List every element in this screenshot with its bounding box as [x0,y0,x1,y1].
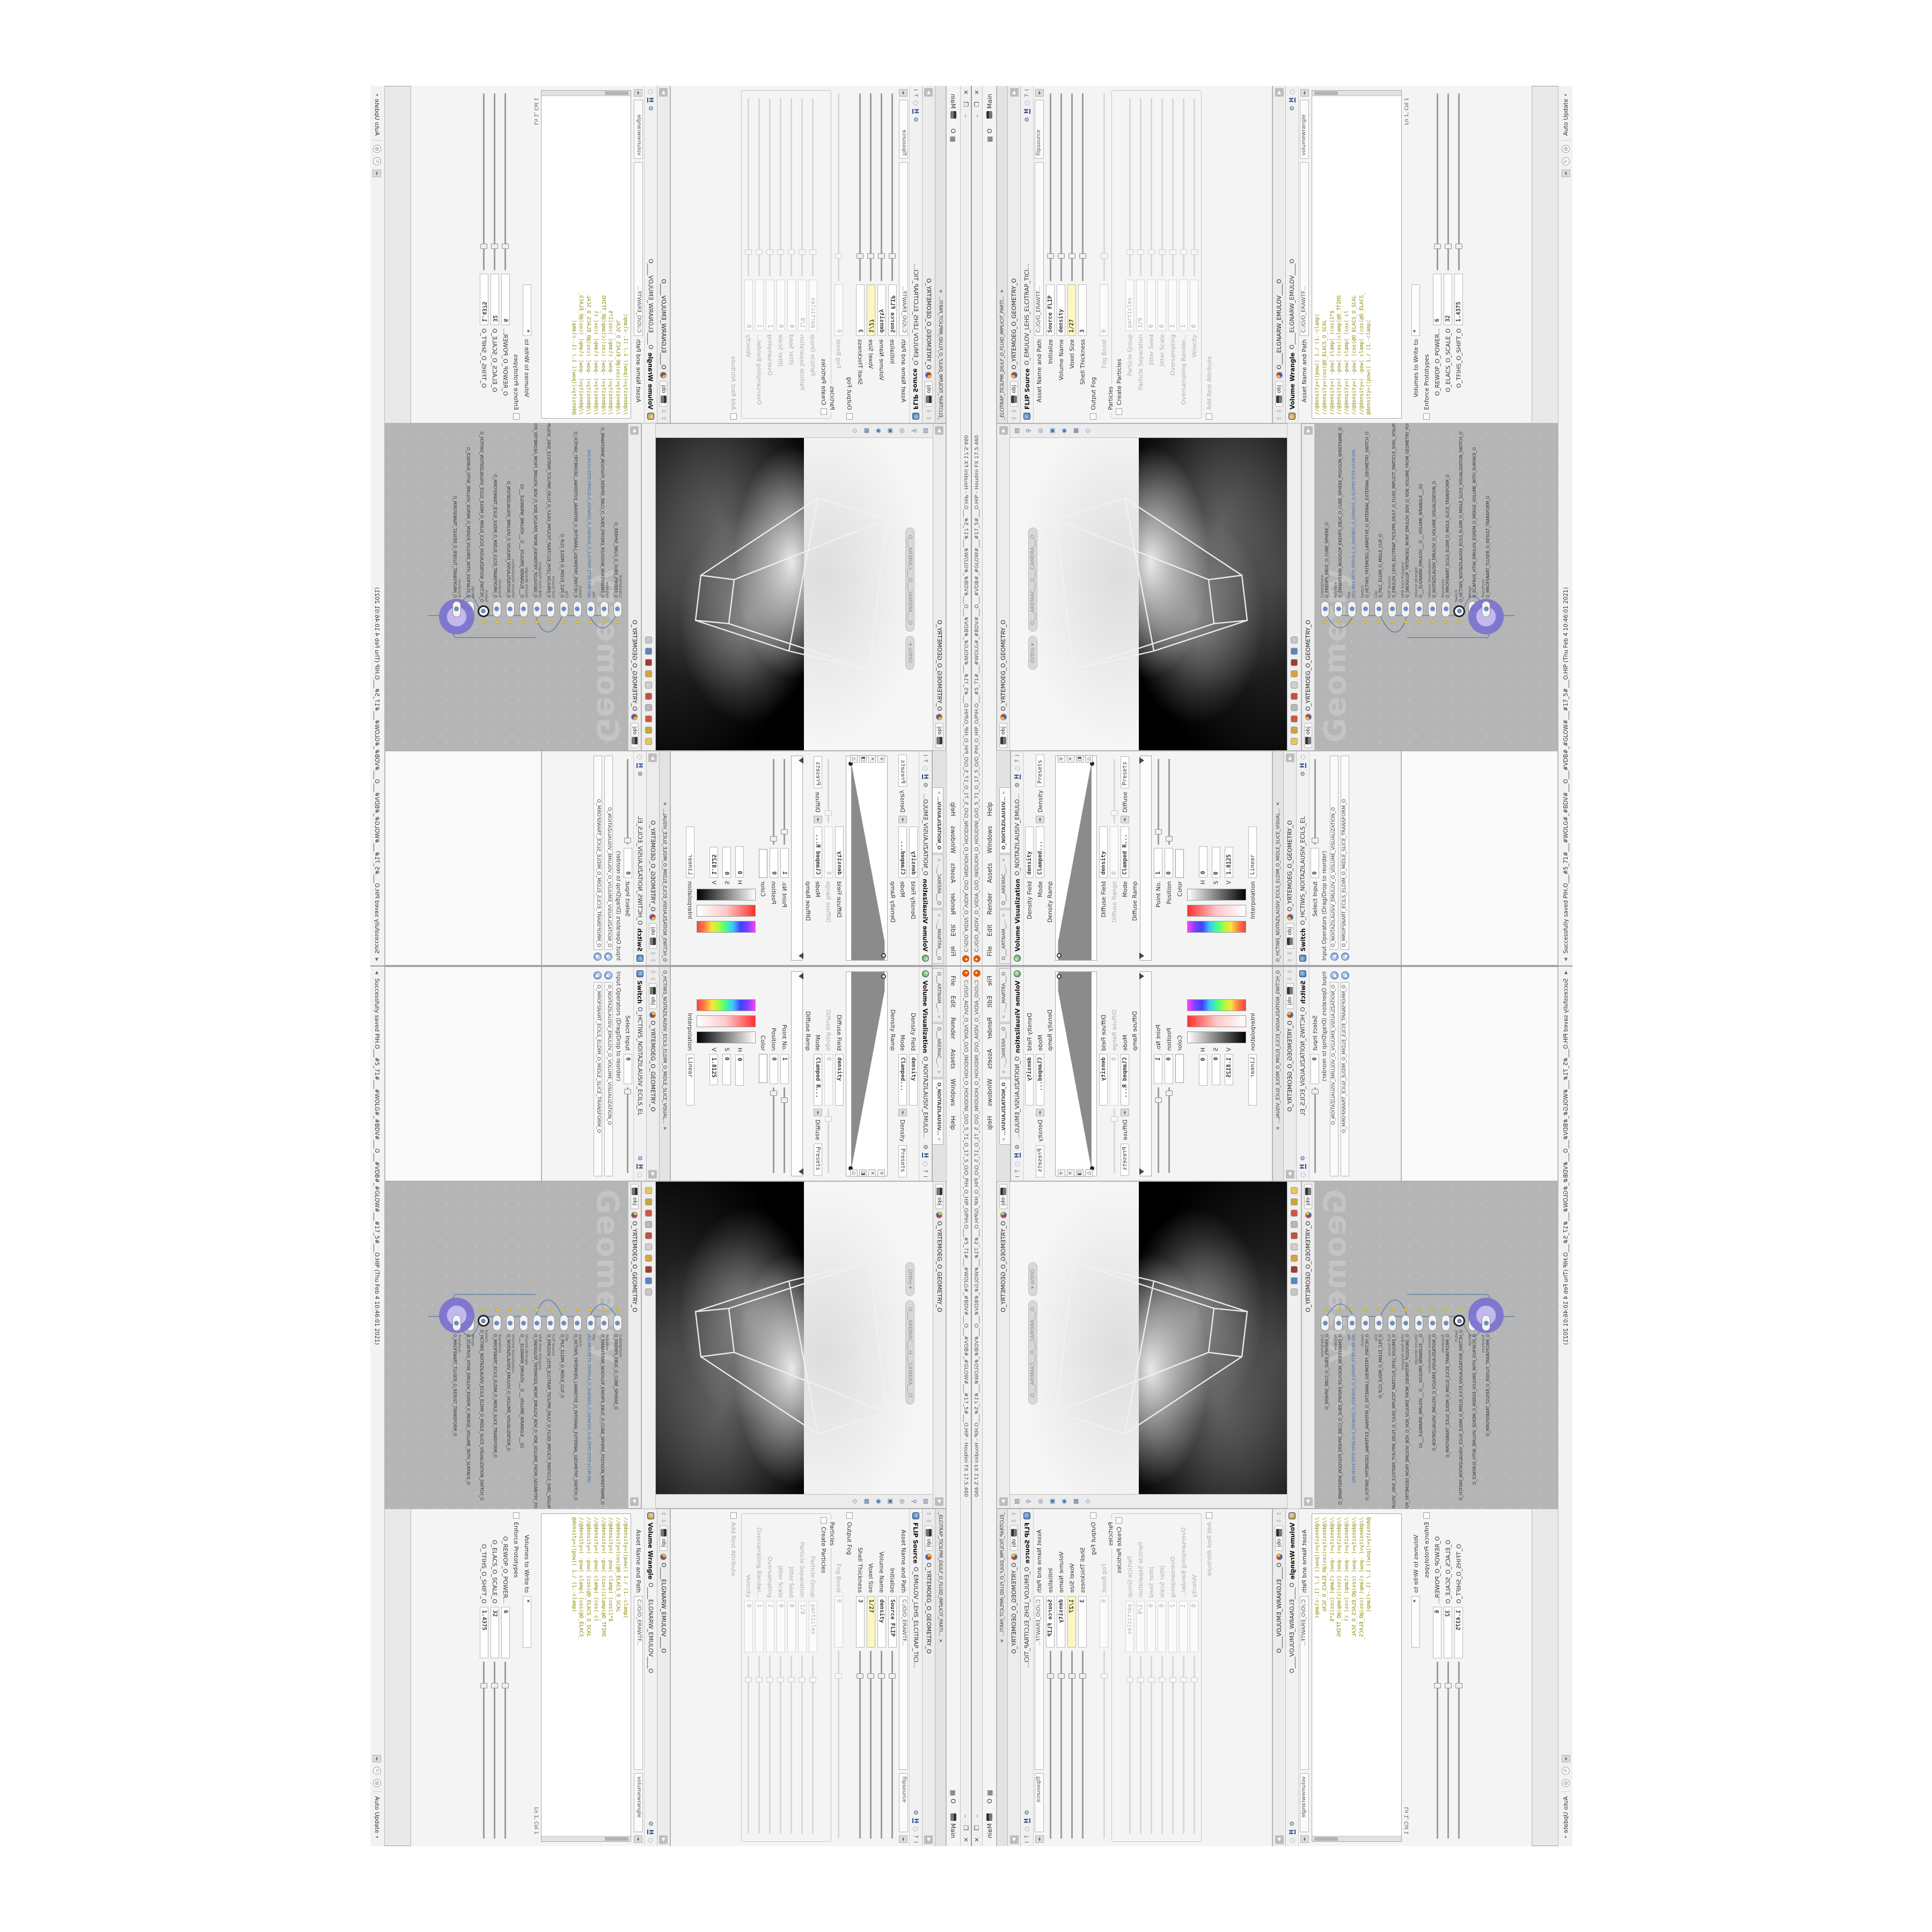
search-icon[interactable]: ◌ [1023,1826,1030,1832]
view-mode-pill[interactable]: Ortho ▾ [1028,1262,1037,1296]
menu-item[interactable]: Help [948,1111,959,1135]
network-node[interactable]: SwitchO_HCTIWS_YRTEMOEG_LANRETXE_O_INTER… [573,423,582,624]
ramp-add-button[interactable]: ✛ [1058,755,1065,763]
tab-close-icon[interactable]: ✕ [936,858,941,862]
node-badge[interactable] [452,601,461,617]
node-name[interactable]: O_HCTIWS_NOITAZILAUSIV_ECILS_EL [636,1007,643,1152]
node-badge[interactable] [1441,601,1450,617]
network-node[interactable]: Volume VisualizationO_NOITAZILAUSIV_EMUL… [1428,1308,1437,1509]
snap-icon[interactable]: ◇ [852,428,859,433]
snap-grid-icon[interactable] [645,715,652,722]
node-flag-icon[interactable] [1377,620,1380,624]
nav-down-icon[interactable]: ⇩ [925,1518,932,1523]
value-strip[interactable] [1187,889,1246,901]
node-name[interactable]: O_EMULOV_LEHS_ELCITRAP_TICI... [1023,126,1030,365]
checkbox[interactable] [1423,413,1430,420]
network-node[interactable]: Volume VisualizationO_NOITAZILAUSIV_EMUL… [506,423,515,624]
parameter-value[interactable]: 0 [1158,280,1166,331]
node-flag-icon[interactable] [1444,1308,1447,1312]
expand-button[interactable]: ▶ [1286,753,1294,762]
parameter-value[interactable]: 1/27 [1067,284,1076,336]
node-badge[interactable] [1482,1315,1490,1331]
point-no-value[interactable]: 1 [780,848,789,878]
ramp-flag-handle[interactable] [799,973,803,979]
h-value[interactable]: 0 [735,1055,744,1086]
shade-mode-icon[interactable] [645,1255,652,1262]
search-icon[interactable]: ◌ [1023,100,1030,106]
parameter-value[interactable]: 0 [1190,280,1198,331]
nav-up-icon[interactable]: ⇧ [925,416,932,421]
cube-view-icon[interactable]: ▣ [887,1498,894,1504]
layout-icon[interactable]: ▤ [923,1498,930,1504]
pane-path[interactable]: O_YRTEMOEG_O_GEOMETRY_O [1000,437,1007,711]
expand-button[interactable]: ▶ [1010,88,1019,97]
parameter-slider[interactable] [1194,1656,1195,1834]
node-flag-icon[interactable] [616,1308,619,1312]
menu-item[interactable]: File [984,941,995,961]
expand-button[interactable]: ▶ [649,1170,657,1179]
code-scrollbar[interactable] [541,1836,631,1841]
node-badge[interactable] [478,1315,489,1327]
viewport-canvas[interactable]: Ortho ▾ O___AREMAC___O___CAMERA___O [655,437,933,750]
expand-button[interactable]: ▶ [935,426,944,435]
network-node[interactable]: Volume VisualizationO_NOITAZILAUSIV_EMUL… [506,1308,515,1509]
parameter-slider[interactable] [1458,93,1460,270]
pane-tab[interactable]: O___AREMAC__...✕ [933,1023,943,1078]
mode2-dropdown[interactable]: Clamped R... [814,1054,822,1106]
node-flag-icon[interactable] [509,1308,512,1312]
network-node[interactable]: FileJRD.M01.PETS.TRIPOLS_O_SISENEG_O_GEN… [586,423,596,624]
network-node[interactable]: Volume WrangleO___ELGNARW_EMULOV___O___V… [519,1308,529,1509]
node-badge[interactable] [1401,601,1410,617]
parameter-slider[interactable] [1129,1656,1131,1834]
tab-close-icon[interactable]: ✕ [936,1015,941,1019]
viewport-canvas[interactable]: Ortho ▾ O___AREMAC___O___CAMERA___O [655,1182,933,1495]
point-no-slider[interactable] [1158,1087,1159,1173]
flip-pane-tab[interactable]: _ELCITRAP_TICILPMI_DIULF_O_FLUID_IMPLICI… [938,296,943,420]
parameter-slider[interactable] [770,1656,771,1834]
network-node[interactable]: ClipO_PILC_ELDIM_O_MIDLE_CLIP_O [559,1308,569,1509]
s-value[interactable]: 0 [722,1054,731,1085]
pane-path[interactable]: O____ELGNARW_EMULOV____O [1276,1563,1283,1833]
snap-prim-icon[interactable] [1291,704,1298,711]
checkbox[interactable] [513,413,519,420]
checkbox[interactable] [846,413,853,420]
houdini-help-icon[interactable]: H [923,774,929,779]
diffuse-ramp-widget[interactable] [1140,756,1152,961]
point-no-slider[interactable] [784,759,786,845]
node-name[interactable]: O____ELGNARW_EMULOV____O [1289,1583,1296,1818]
select-input-value[interactable]: 0 [624,1054,632,1084]
diffuse-field-value[interactable]: density [1099,1054,1108,1106]
ramp-point-handle[interactable] [1057,974,1062,979]
expand-button[interactable]: ▶ [935,1497,944,1506]
network-node[interactable]: SwitchO_HCTIWS_YRTEMOEG_LANRETXE_O_INTER… [1360,423,1370,624]
search-icon[interactable]: ◌ [912,100,919,106]
nav-up-icon[interactable]: ⇧ [925,1511,932,1516]
snap-icon[interactable]: ◇ [1084,428,1091,433]
pane-path[interactable]: O_YRTEMOEG_O_GEOMETRY_O [649,1021,656,1167]
gear-icon[interactable]: ⚙ [1289,1821,1296,1826]
camera-name-pill[interactable]: O___AREMAC___O___CAMERA___O [905,1300,914,1404]
presets-button[interactable]: Presets [814,1144,822,1176]
gear-icon[interactable]: ⚙ [1023,117,1030,122]
checkbox[interactable] [1423,1512,1430,1519]
search-icon[interactable]: ◌ [922,766,929,771]
node-badge[interactable] [1388,1315,1396,1331]
node-flag-icon[interactable] [562,620,566,624]
node-flag-icon[interactable] [549,620,552,624]
parameter-slider[interactable] [1172,1656,1174,1834]
parameter-value[interactable]: Source FLIP [888,1596,897,1648]
density-field-value[interactable]: density [909,826,918,878]
checkbox[interactable] [730,413,737,420]
switch-pane-tab[interactable]: O_HCTIWS_NOITAZILAUSIV_ECILS_ELDIM_O_MID… [1276,808,1281,962]
pane-path[interactable]: O_YRTEMOEG_O_GEOMETRY_O [925,99,932,369]
node-name[interactable]: O_NOITAZILAUSIV_EMULO... [922,791,929,876]
tab-close-icon[interactable]: ✕ [1001,1015,1006,1019]
node-badge[interactable] [600,601,609,617]
parameter-slider[interactable] [1060,93,1062,281]
desktop-main[interactable]: Main [985,1809,994,1842]
network-node[interactable]: ClipO_PILC_ELDIM_O_MIDLE_CLIP_O [1374,1308,1384,1509]
houdini-help-icon[interactable]: H [1300,763,1306,768]
code-scrollbar[interactable] [1312,1836,1401,1841]
menu-item[interactable]: Assets [984,1044,995,1073]
asset-path-combo[interactable]: C:/O/O_ERAWTF... [1035,162,1044,336]
tab-close-icon[interactable]: ✕ [936,1070,941,1074]
saturation-strip[interactable] [697,1015,756,1027]
asset-name-combo[interactable]: flipsource [1035,100,1044,159]
camera-view-icon[interactable]: ◉ [1060,428,1067,434]
nav-up-icon[interactable]: ⇧ [660,416,667,421]
checkbox[interactable] [513,1512,519,1519]
tab-close-icon[interactable]: ✕ [938,289,943,293]
node-flag-icon[interactable] [616,620,619,624]
network-node[interactable]: SwitchO_HCTIWS_NOITAZILAUSIV_ECILS_ELDIM… [1454,423,1464,624]
presets-button[interactable]: Presets [1121,756,1129,788]
show-normals-icon[interactable] [645,1198,652,1205]
nav-up-icon[interactable]: ⇧ [1286,958,1293,963]
menu-item[interactable]: Render [984,1013,995,1044]
network-node[interactable]: Volume WrangleO___ELGNARW_EMULOV___O___V… [519,423,529,624]
h-value[interactable]: 0 [1199,1055,1207,1086]
node-name[interactable]: O_EMULOV_LEHS_ELCITRAP_TICI... [1023,1567,1030,1807]
parameter-value[interactable]: Source FLIP [888,284,897,336]
diffuse-range-value[interactable]: 0 [1110,1054,1118,1106]
globe-icon[interactable]: ◍ [373,145,381,153]
point-no-slider[interactable] [1158,759,1159,845]
network-node[interactable]: VDB from PolygonsO_SNOGILOP_YRTEMOEG_MOR… [532,1308,542,1509]
camera-view-icon[interactable]: ◉ [1060,1499,1067,1504]
hue-strip[interactable] [697,921,756,933]
node-badge[interactable] [1441,1315,1450,1331]
diffuse-ramp-widget[interactable] [791,971,803,1176]
pane-tab[interactable]: O___ARTNAM__...✕ [999,968,1010,1022]
nav-up-icon[interactable]: ⇧ [649,969,656,974]
nav-up-icon[interactable]: ⇧ [1011,1511,1018,1516]
node-flag-icon[interactable] [1444,620,1447,624]
camera-name-pill[interactable]: O___AREMAC___O___CAMERA___O [1028,1300,1037,1404]
pane-path[interactable]: O_YRTEMOEG_O_GEOMETRY_O [1011,99,1018,369]
snap-grid-icon[interactable] [1291,715,1298,722]
ramp-flag-handle[interactable] [1139,1168,1144,1175]
h-value[interactable]: 0 [735,846,744,877]
parameter-slider[interactable] [759,1656,760,1834]
menu-item[interactable]: Help [984,1111,995,1135]
mode2-dropdown[interactable]: Clamped R... [1121,1054,1129,1106]
density-subtab[interactable]: Density [899,1119,906,1142]
network-node[interactable]: VDB from PolygonsO_SNOGILOP_YRTEMOEG_MOR… [532,423,542,624]
snap-icon[interactable]: ◇ [852,1499,859,1503]
asset-path-combo[interactable]: C:/O/O_ERAWTF... [634,1596,643,1770]
node-flag-icon[interactable] [1391,1308,1394,1312]
cube-view-icon[interactable]: ▣ [1049,1498,1056,1504]
code-scrollbar[interactable] [1312,91,1401,96]
pane-path[interactable]: O_YRTEMOEG_O_GEOMETRY_O [1305,437,1312,711]
position-slider[interactable] [773,759,775,845]
spinner-icon[interactable]: ◂▸ [634,89,643,97]
diffuse-field-value[interactable]: density [835,1054,844,1106]
network-node[interactable]: ClipO_PILC_ELDIM_O_MIDLE_CLIP_O [559,423,569,624]
view-mode-pill[interactable]: Ortho ▾ [905,636,914,670]
search-icon[interactable]: ◌ [636,755,643,760]
gear-icon[interactable]: ⚙ [1023,1810,1030,1815]
node-flag-icon[interactable] [495,620,499,624]
reorder-handle-icon[interactable]: ◀ [605,953,613,961]
flip-pane-tab[interactable]: _ELCITRAP_TICILPMI_DIULF_O_FLUID_IMPLICI… [1000,1512,1005,1636]
parameter-value[interactable]: 1.4375 [480,1607,488,1658]
parameter-value[interactable]: Source FLIP [1046,1596,1055,1648]
snap-point-icon[interactable] [645,1232,652,1239]
info-icon[interactable]: i [922,755,929,756]
asset-name-combo[interactable]: volumewrangle [634,100,643,159]
parameter-slider[interactable] [1151,1656,1152,1834]
menu-item[interactable]: File [948,941,959,961]
menu-item[interactable]: Assets [948,858,959,888]
gear-icon[interactable]: ⚙ [636,1155,643,1161]
display-options-icon[interactable] [1291,648,1298,655]
status-collapse-icon[interactable]: ◀ [1563,971,1568,974]
houdini-help-icon[interactable]: H [637,1164,643,1169]
asset-name-combo[interactable]: flipsource [899,1773,908,1832]
presets-button[interactable]: Presets [1036,755,1044,787]
parameter-slider[interactable] [505,1662,507,1839]
node-name[interactable]: O_EMULOV_LEHS_ELCITRAP_TICI... [912,126,919,365]
vex-snippet-editor[interactable]: //@density=((pow(( 1./ (1.-clamp(//@dens… [1312,1513,1402,1842]
parameter-value[interactable]: 2 [1168,280,1177,331]
gear-icon[interactable]: ⚙ [1299,1155,1306,1161]
parameter-value[interactable]: 32 [491,274,499,325]
menu-item[interactable]: Windows [948,1074,959,1111]
network-node[interactable]: PolyWireO_EMARFERIW_NOGYLOP_EREHPS_EBUC_… [1334,423,1343,624]
show-normals-icon[interactable] [1291,1198,1298,1205]
camera-view-icon[interactable]: ◉ [875,428,882,434]
asset-path-combo[interactable]: C:/O/O_ERAWTF... [1300,162,1309,336]
menu-item[interactable]: File [948,971,959,991]
parameter-value[interactable]: 0 [777,280,785,331]
parameter-value[interactable]: 0 [787,280,796,331]
presets-button[interactable]: Presets [898,1145,907,1177]
pane-path[interactable]: O_YRTEMOEG_O_GEOMETRY_O [649,765,656,911]
network-node[interactable]: CubeSphereO_EREHPS_EBUC_O_CUBE_SPHERE_O [613,423,623,624]
nav-down-icon[interactable]: ⇩ [925,409,932,414]
help-icon[interactable]: ? [1023,94,1030,97]
search-icon[interactable]: ◌ [1014,766,1021,771]
diffuse-field-value[interactable]: density [835,826,844,878]
asset-name-combo[interactable]: volumewrangle [634,1773,643,1832]
node-badge[interactable] [560,601,568,617]
wireframe-icon[interactable] [1291,659,1298,666]
network-node[interactable]: ClipO_PILC_ELDIM_O_MIDLE_CLIP_O [1374,423,1384,624]
diffuse-range-slider[interactable] [828,759,830,823]
snap-prim-icon[interactable] [1291,1221,1298,1228]
density-ramp-widget[interactable]: ✛ ✕ ◨ △ [1055,756,1097,961]
parameter-slider[interactable] [1082,93,1084,281]
menu-item[interactable]: Help [948,797,959,821]
position-value[interactable]: 0 [770,848,778,878]
wireframe-icon[interactable] [645,1266,652,1273]
menu-item[interactable]: Windows [984,821,995,858]
parameter-value[interactable]: 32 [491,1607,499,1658]
tab-close-icon[interactable]: ✕ [1001,1137,1006,1141]
saturation-strip[interactable] [1187,1015,1246,1027]
parameter-slider[interactable] [881,1651,883,1839]
parameter-value[interactable]: 1/9 [798,1601,807,1652]
camera-name-pill[interactable]: O___AREMAC___O___CAMERA___O [905,528,914,632]
spinner-icon[interactable]: ◂▸ [1300,1835,1309,1843]
node-flag-icon[interactable] [1417,620,1421,624]
expand-button[interactable]: ▶ [999,1497,1008,1506]
snap-multi-icon[interactable] [645,1243,652,1250]
menu-item[interactable]: Render [984,888,995,920]
minimize-button[interactable]: – [962,1812,969,1820]
input-operator-name[interactable]: O_MROFSNART_ECILS_ELDIM_O_MIDLE_SLICE_TR… [1341,756,1349,950]
spinner-icon[interactable]: ◂▸ [1121,816,1129,823]
node-flag-icon[interactable] [576,620,579,624]
density-ramp-widget[interactable]: ✛ ✕ ◨ △ [846,756,888,961]
volumes-to-write-value[interactable]: * [523,1596,531,1648]
tab-close-icon[interactable]: ✕ [1000,1639,1005,1643]
sync-icon[interactable]: ↻ [1562,1767,1570,1775]
maximize-button[interactable]: ❐ [974,1824,980,1832]
grid-toggle-icon[interactable]: ▦ [1072,1498,1079,1504]
pin-icon[interactable]: ⚲ [1025,1499,1032,1503]
ramp-delete-button[interactable]: ✕ [1067,1169,1074,1177]
node-badge[interactable] [546,601,555,617]
network-node[interactable]: VDB from PolygonsO_SNOGILOP_YRTEMOEG_MOR… [1401,1308,1410,1509]
parameter-slider[interactable] [1103,93,1105,281]
pane-tab[interactable]: O_NOITAZILAUSIV...✕ [933,1079,943,1145]
tab-close-icon[interactable]: ✕ [936,791,941,795]
node-badge[interactable] [1321,1315,1329,1331]
nav-up-icon[interactable]: ⇧ [1286,969,1293,974]
input-operator-name[interactable]: O_MROFSNART_ECILS_ELDIM_O_MIDLE_SLICE_TR… [1341,982,1349,1176]
ramp-expand-button[interactable]: ◨ [859,1169,867,1177]
diffuse-field-value[interactable]: density [1099,826,1108,878]
parameter-value[interactable]: 1 [1179,1601,1188,1652]
node-badge[interactable] [1453,1315,1465,1327]
parameter-value[interactable]: particles [809,280,817,331]
houdini-help-icon[interactable]: H [913,1818,919,1823]
houdini-help-icon[interactable]: H [1300,1164,1306,1169]
network-node[interactable]: CubeSphereO_EREHPS_EBUC_O_CUBE_SPHERE_O [1320,1308,1330,1509]
spinner-icon[interactable]: ◂▸ [898,1109,907,1116]
parameter-value[interactable]: 1/9 [798,280,807,331]
node-name[interactable]: O_HCTIWS_NOITAZILAUSIV_ECILS_EL [1299,780,1306,925]
ramp-flip-button[interactable]: △ [850,1169,858,1177]
parameter-value[interactable]: 1.4375 [1454,1607,1463,1658]
density-field-value[interactable]: density [1025,1054,1034,1106]
diffuse-ramp-widget[interactable] [791,756,803,961]
menu-item[interactable]: Windows [984,1074,995,1111]
parameter-value[interactable]: 0 [835,284,843,336]
parameter-slider[interactable] [748,1656,750,1834]
network-node[interactable]: Volume WrangleO___ELGNARW_EMULOV___O___V… [1414,423,1424,624]
help-icon[interactable]: ? [1014,759,1021,763]
snap-prim-icon[interactable] [645,704,652,711]
point-no-slider[interactable] [784,1087,786,1173]
node-flag-icon[interactable] [603,620,606,624]
search-icon[interactable]: ◌ [1299,755,1306,760]
select-input-slider[interactable] [627,1087,629,1173]
mode-dropdown[interactable]: Clamped... [1036,1054,1044,1106]
maximize-button[interactable]: ❐ [962,100,969,108]
parameter-slider[interactable] [1437,93,1438,270]
mode2-dropdown[interactable]: Clamped R... [1121,826,1129,878]
network-node[interactable]: MergeO_ECAFRUS_HTIW_EMULOV_EGREM_O_MERGE… [465,423,475,624]
parameter-slider[interactable] [791,98,793,276]
cube-view-icon[interactable]: ▣ [887,428,894,433]
diffuse-subtab[interactable]: Diffuse [815,792,822,813]
status-collapse-icon[interactable]: ◀ [1563,958,1568,961]
parameter-slider[interactable] [892,1651,894,1839]
menu-item[interactable]: Edit [948,991,959,1012]
pane-path[interactable]: O_YRTEMOEG_O_GEOMETRY_O [1000,1221,1007,1495]
parameter-slider[interactable] [1458,1662,1460,1839]
expand-button[interactable]: ▶ [660,88,668,97]
parameter-value[interactable]: particles [809,1601,817,1652]
flip-pane-tab[interactable]: _ELCITRAP_TICILPMI_DIULF_O_FLUID_IMPLICI… [1000,296,1005,420]
node-flag-icon[interactable] [1323,1308,1327,1312]
tab-close-icon[interactable]: ✕ [1276,802,1281,806]
parameter-value[interactable]: 1/27 [867,284,875,336]
diffuse-ramp-widget[interactable] [1140,971,1152,1176]
interpolation-dropdown[interactable]: Linear [1248,1054,1257,1106]
title-bar[interactable]: C:/O/O_AIDIV_O_VIDIA_O/O_INIDUOH_O_HOUDI… [972,86,983,965]
node-flag-icon[interactable] [482,1308,485,1312]
parameter-slider[interactable] [1071,1651,1073,1839]
color-swatch[interactable] [759,849,767,878]
node-flag-icon[interactable] [1364,1308,1367,1312]
asset-name-combo[interactable]: flipsource [1035,1773,1044,1832]
node-flag-icon[interactable] [455,620,458,624]
render-flag-icon[interactable] [645,636,652,643]
nav-down-icon[interactable]: ⇩ [1276,409,1283,414]
tab-close-icon[interactable]: ✕ [1000,289,1005,293]
checkbox[interactable] [846,1512,853,1519]
render-flag-icon[interactable] [645,1289,652,1296]
snap-grid-icon[interactable] [645,1210,652,1217]
asset-name-combo[interactable]: flipsource [899,100,908,159]
parameter-value[interactable]: 2 [766,1601,774,1652]
spinner-icon[interactable]: ◂▸ [1300,89,1309,97]
network-node[interactable]: CubeSphereO_EREHPS_EBUC_O_CUBE_SPHERE_O [613,1308,623,1509]
expand-button[interactable]: ▶ [1286,1170,1294,1179]
parameter-value[interactable]: 0 [744,1601,753,1652]
parameter-slider[interactable] [484,93,485,270]
pane-path[interactable]: O____ELGNARW_EMULOV____O [660,99,667,369]
